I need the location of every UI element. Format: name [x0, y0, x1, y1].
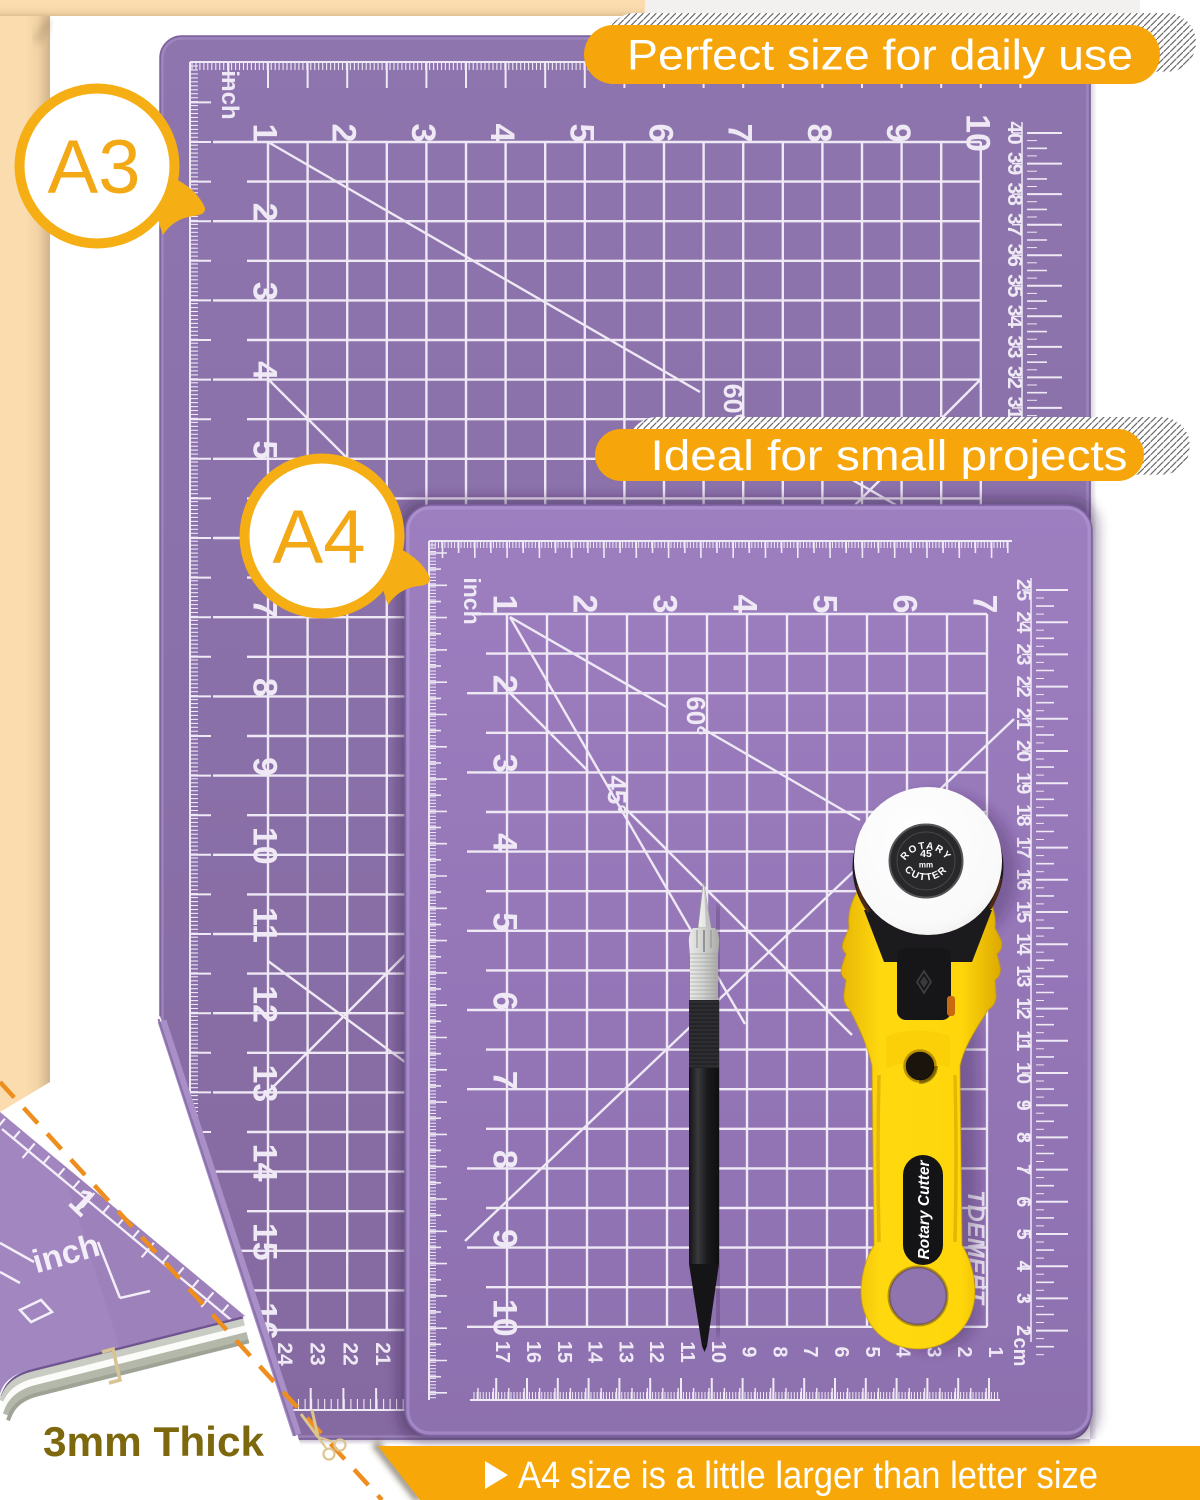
svg-text:inch: inch: [459, 577, 485, 624]
svg-text:22: 22: [338, 1342, 361, 1365]
svg-text:15: 15: [246, 1223, 284, 1261]
svg-text:10: 10: [486, 1299, 524, 1337]
svg-text:7: 7: [966, 595, 1004, 614]
svg-text:9: 9: [486, 1229, 524, 1248]
svg-text:A4: A4: [273, 495, 366, 580]
svg-text:6: 6: [886, 595, 924, 614]
svg-text:2: 2: [486, 675, 524, 694]
svg-text:15: 15: [553, 1341, 575, 1363]
svg-text:2: 2: [246, 203, 284, 222]
svg-text:6: 6: [830, 1346, 852, 1357]
svg-text:1: 1: [246, 124, 284, 143]
svg-text:14: 14: [246, 1144, 284, 1182]
svg-text:inch: inch: [216, 70, 243, 119]
svg-text:9: 9: [879, 124, 917, 143]
svg-text:10: 10: [958, 114, 996, 152]
svg-text:21: 21: [371, 1342, 394, 1366]
svg-text:5: 5: [486, 912, 524, 931]
svg-text:A3: A3: [48, 125, 141, 210]
svg-text:4: 4: [483, 124, 521, 143]
svg-text:45°: 45°: [602, 775, 632, 814]
svg-text:8: 8: [246, 678, 284, 697]
svg-text:11: 11: [676, 1341, 698, 1362]
svg-text:2: 2: [325, 124, 363, 143]
svg-text:5: 5: [806, 595, 844, 614]
svg-text:4: 4: [726, 595, 764, 614]
svg-text:12: 12: [645, 1341, 667, 1363]
svg-text:5: 5: [562, 124, 600, 143]
svg-text:6: 6: [486, 992, 524, 1011]
svg-text:2: 2: [953, 1346, 975, 1357]
svg-text:Rotary Cutter: Rotary Cutter: [916, 1160, 933, 1260]
svg-text:7: 7: [799, 1346, 821, 1357]
svg-text:5: 5: [861, 1346, 883, 1357]
svg-text:3: 3: [404, 124, 442, 143]
svg-text:6: 6: [642, 124, 680, 143]
svg-text:12: 12: [246, 985, 284, 1023]
svg-text:3: 3: [486, 754, 524, 773]
svg-text:4: 4: [246, 361, 284, 380]
svg-text:8: 8: [768, 1346, 790, 1357]
svg-text:17: 17: [491, 1341, 513, 1363]
svg-text:11: 11: [246, 907, 284, 943]
svg-text:3mm Thick: 3mm Thick: [43, 1418, 265, 1465]
svg-text:9: 9: [738, 1346, 760, 1357]
svg-text:14: 14: [584, 1341, 606, 1364]
svg-text:23: 23: [306, 1342, 329, 1365]
svg-text:45: 45: [920, 848, 932, 860]
svg-text:2: 2: [566, 595, 604, 614]
svg-text:13: 13: [614, 1341, 636, 1363]
svg-text:Ideal for small projects: Ideal for small projects: [651, 432, 1128, 480]
svg-text:8: 8: [486, 1150, 524, 1169]
svg-text:Perfect size for daily use: Perfect size for daily use: [627, 32, 1133, 80]
svg-text:7: 7: [721, 124, 759, 143]
svg-text:5: 5: [246, 440, 284, 459]
svg-text:mm: mm: [919, 861, 933, 870]
svg-text:9: 9: [246, 757, 284, 776]
svg-text:10: 10: [246, 827, 284, 865]
svg-text:1: 1: [984, 1346, 1006, 1357]
svg-text:3: 3: [646, 595, 684, 614]
svg-text:60°: 60°: [681, 696, 711, 735]
svg-text:8: 8: [800, 124, 838, 143]
svg-text:3: 3: [246, 282, 284, 301]
svg-text:1: 1: [486, 595, 524, 614]
svg-text:cm: cm: [1009, 1338, 1031, 1367]
svg-text:4: 4: [486, 833, 524, 852]
svg-text:A4 size is a little larger tha: A4 size is a little larger than letter s…: [518, 1455, 1098, 1497]
svg-text:10: 10: [707, 1341, 729, 1363]
svg-text:7: 7: [486, 1071, 524, 1090]
svg-text:16: 16: [522, 1341, 544, 1363]
